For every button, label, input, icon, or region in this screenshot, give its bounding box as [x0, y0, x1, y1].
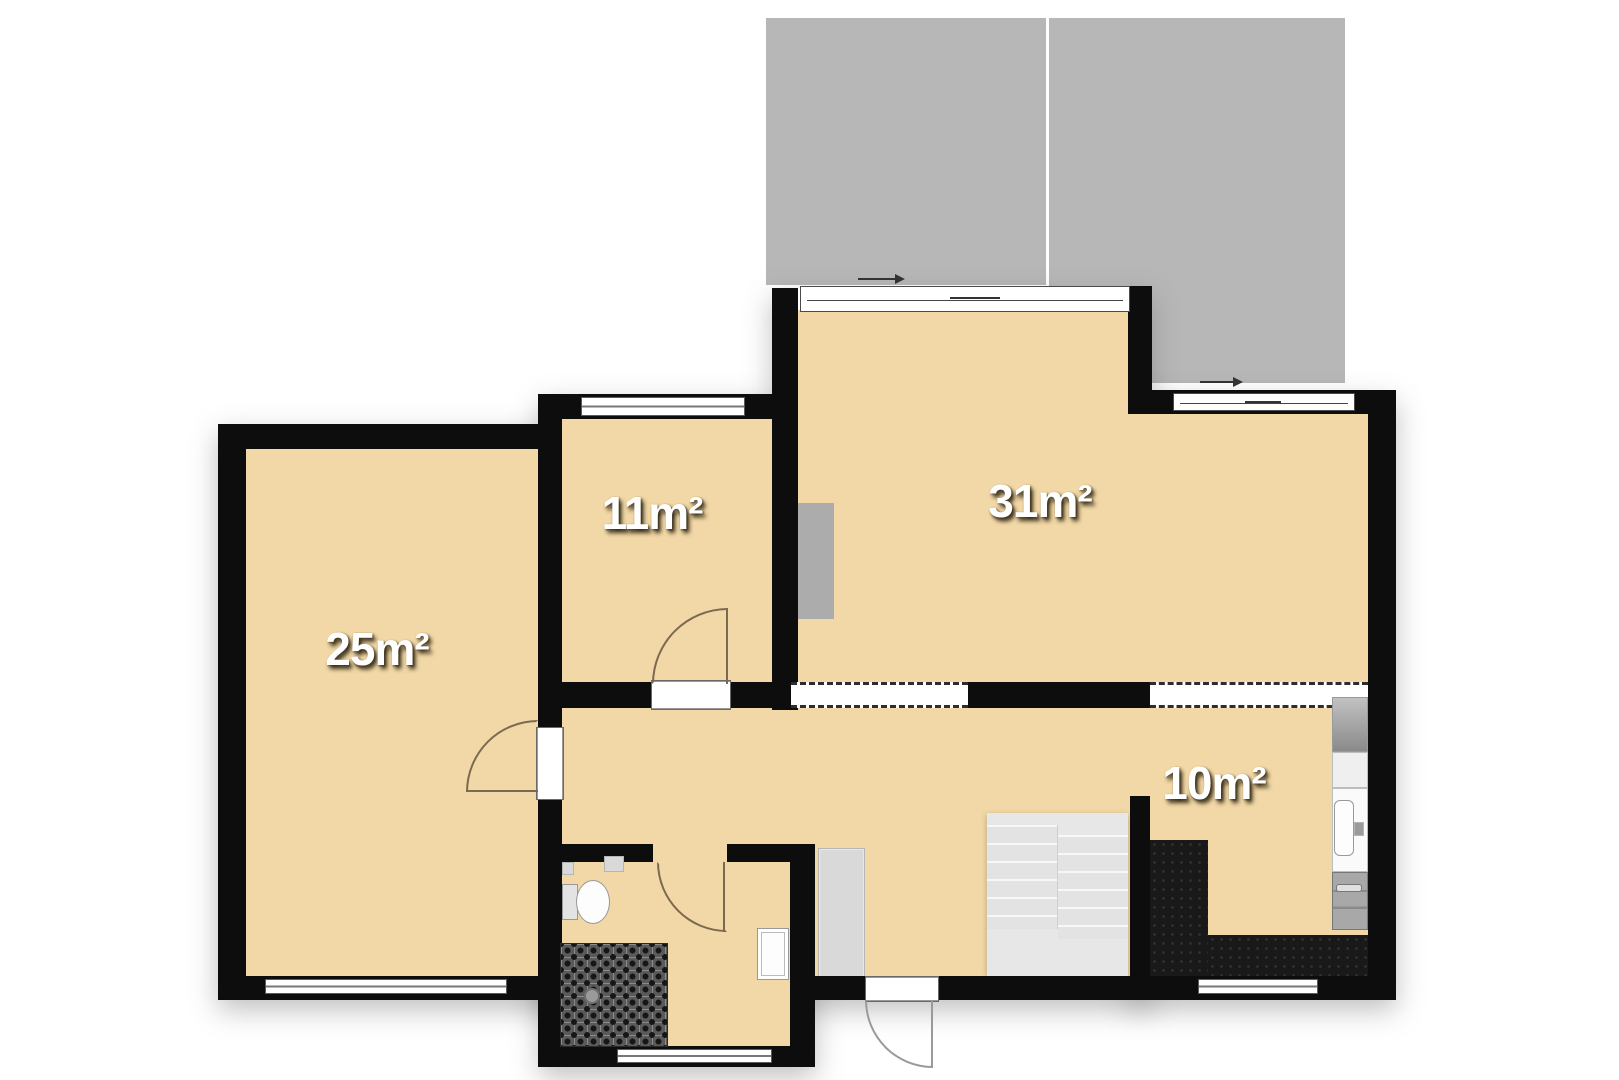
kitchen-sink	[1334, 800, 1354, 856]
kitchen-cabinet	[1332, 752, 1368, 788]
entrance-door-leaf	[931, 1000, 933, 1068]
dark-tile-floor	[1208, 935, 1368, 976]
wall-top-room25	[218, 424, 562, 449]
window	[265, 979, 507, 994]
door-leaf	[723, 862, 725, 932]
room-area-label: 10m²	[1114, 760, 1314, 806]
window	[617, 1049, 772, 1063]
room-area-label: 11m²	[552, 490, 752, 536]
stair-treads-left	[987, 825, 1058, 929]
room-25-floor	[246, 449, 538, 976]
wall-hall-c	[968, 682, 1130, 708]
wall-bathroom-top-b	[727, 844, 793, 862]
wall-hall-b	[729, 682, 791, 708]
slide-arrow-icon	[858, 278, 896, 280]
wall-hall-a	[538, 682, 653, 708]
wall-stub-kitchen	[1130, 796, 1150, 978]
dark-tile-floor	[1150, 840, 1208, 976]
entrance-door-arc	[865, 1000, 933, 1068]
floor-drain-icon	[584, 988, 600, 1004]
toilet-paper-holder-icon	[562, 862, 574, 875]
window	[1198, 979, 1318, 994]
room-area-label: 25m²	[277, 626, 477, 672]
stair-treads-right	[1058, 835, 1128, 939]
wardrobe	[818, 848, 865, 978]
door-leaf	[466, 790, 538, 792]
door-threshold	[651, 680, 731, 710]
wall-hall-d	[1130, 682, 1150, 708]
wall-right-exterior	[1368, 390, 1396, 1000]
floor-plan-canvas: 25m² 11m² 31m² 10m²	[0, 0, 1619, 1080]
room-area-label: 31m²	[930, 478, 1150, 524]
staircase	[987, 813, 1128, 976]
room-31-floor	[798, 414, 1368, 682]
door-leaf	[726, 608, 728, 684]
slider-track-line	[1245, 401, 1281, 403]
door-threshold	[536, 727, 564, 800]
room-31-floor-upper	[798, 310, 1128, 414]
stove	[1332, 872, 1368, 930]
window	[581, 397, 745, 416]
wall-bathroom-right	[790, 844, 815, 1067]
sliding-door	[800, 286, 1130, 312]
faucet-icon	[1354, 822, 1364, 836]
bathroom-sink	[604, 856, 624, 872]
open-passage	[791, 682, 968, 708]
toilet-bowl	[576, 880, 610, 924]
wall-divider-11-31	[772, 288, 798, 710]
fridge	[1332, 697, 1368, 752]
terrace-left	[766, 18, 1046, 285]
radiator	[798, 503, 834, 619]
shower-tiled-floor	[560, 943, 668, 1047]
stove-handle	[1336, 884, 1362, 892]
entrance-door-threshold	[865, 976, 939, 1002]
slide-arrow-icon	[1200, 381, 1234, 383]
wall-left-exterior	[218, 424, 246, 1000]
washbasin	[757, 928, 789, 980]
slider-track-line	[950, 297, 1000, 299]
